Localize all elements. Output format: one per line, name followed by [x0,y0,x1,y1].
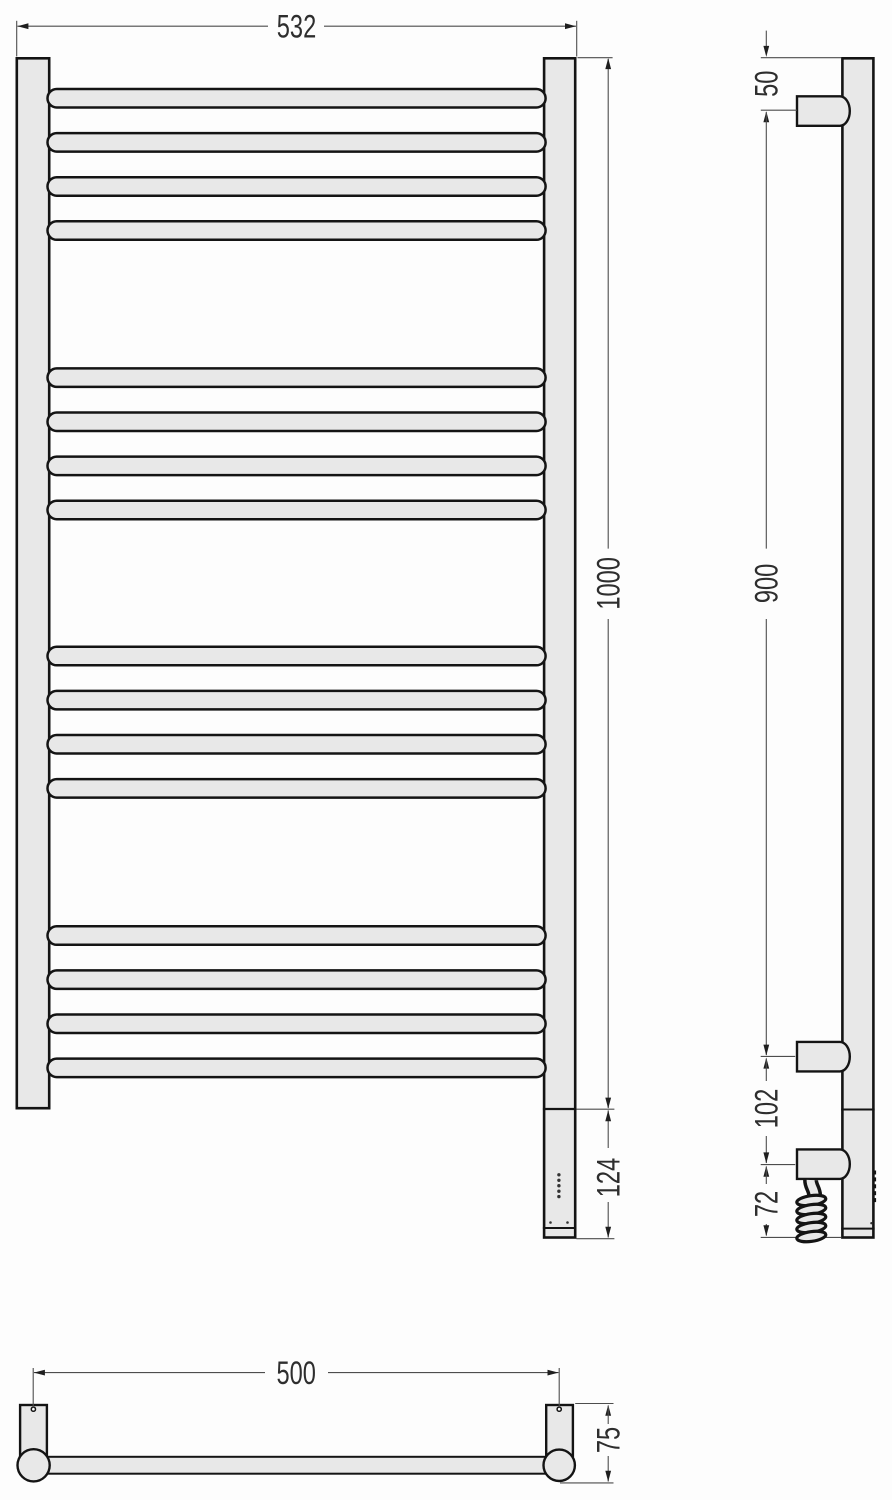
svg-text:900: 900 [749,564,786,603]
svg-text:72: 72 [749,1191,786,1217]
svg-text:500: 500 [277,1355,316,1392]
svg-text:75: 75 [591,1427,628,1453]
svg-text:1000: 1000 [591,557,628,610]
svg-text:102: 102 [749,1089,786,1128]
svg-text:124: 124 [591,1158,628,1197]
svg-text:50: 50 [749,71,786,97]
svg-text:532: 532 [277,9,316,46]
